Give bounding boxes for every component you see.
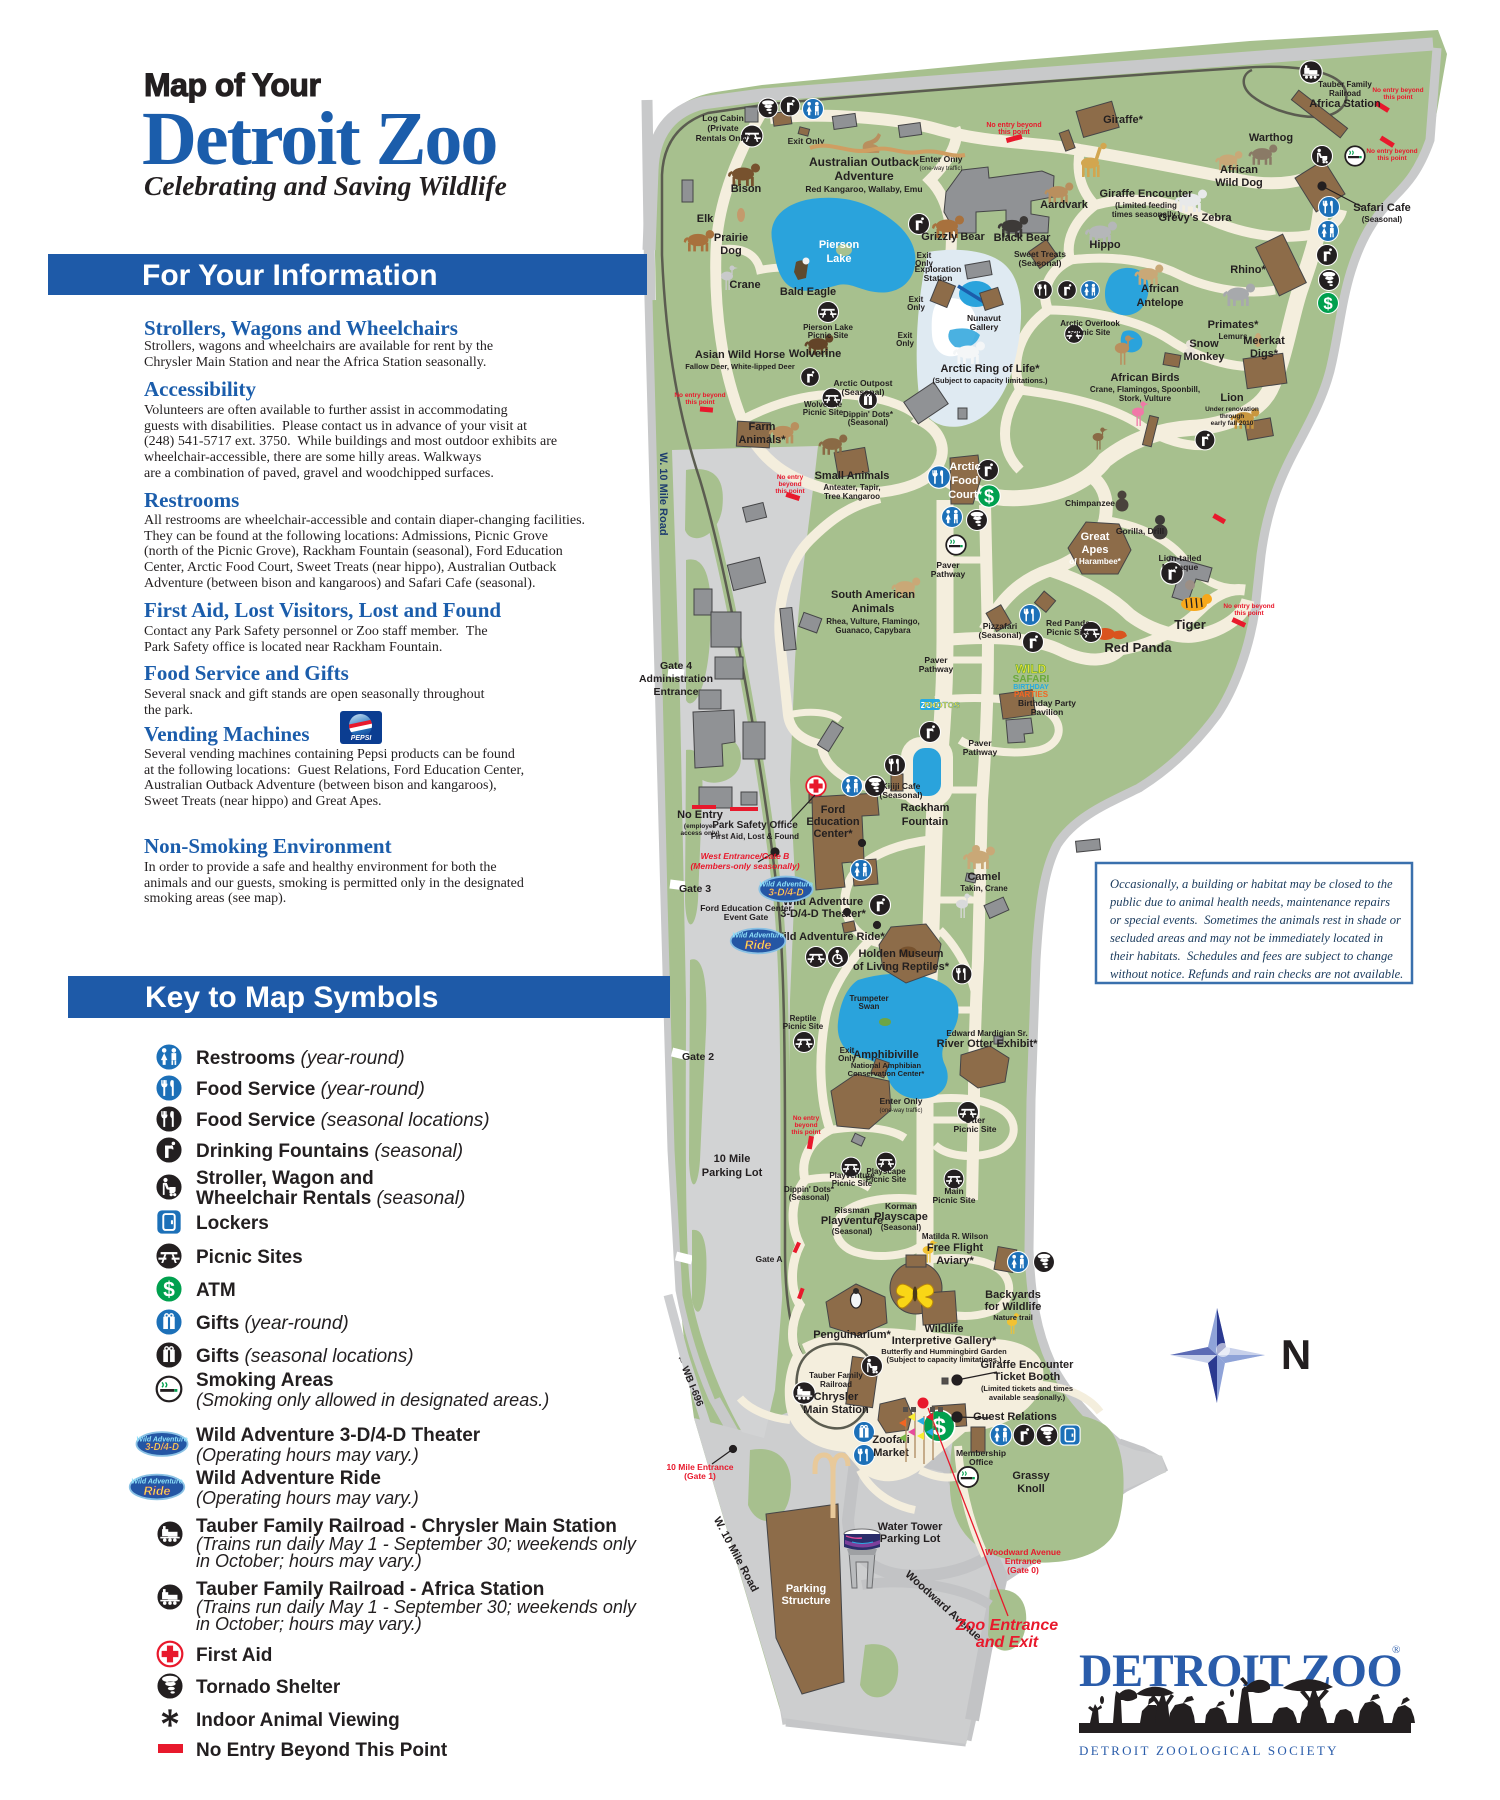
svg-text:Station: Station — [924, 273, 953, 283]
svg-text:Tauber Family: Tauber Family — [1318, 80, 1372, 89]
svg-text:this point: this point — [1383, 94, 1413, 101]
svg-text:Occasionally, a building or ha: Occasionally, a building or habitat may … — [1110, 877, 1393, 891]
svg-text:Pathway: Pathway — [963, 747, 998, 757]
svg-text:Food Service (seasonal locatio: Food Service (seasonal locations) — [196, 1110, 490, 1131]
svg-text:Fountain: Fountain — [902, 816, 949, 828]
svg-text:South American: South American — [831, 589, 915, 601]
svg-text:Water Tower: Water Tower — [878, 1521, 944, 1533]
svg-text:available seasonally.): available seasonally.) — [989, 1393, 1066, 1402]
svg-text:No entry beyond: No entry beyond — [1372, 87, 1423, 94]
svg-text:Only: Only — [907, 303, 925, 312]
svg-text:Picnic Site: Picnic Site — [803, 408, 844, 417]
svg-text:Knoll: Knoll — [1017, 1483, 1045, 1495]
svg-text:Entrance: Entrance — [654, 686, 699, 698]
svg-text:First Aid, Lost & Found: First Aid, Lost & Found — [711, 832, 799, 841]
svg-text:Center*: Center* — [813, 828, 853, 840]
svg-text:Conservation Center*: Conservation Center* — [848, 1069, 925, 1078]
svg-text:Animals: Animals — [852, 603, 895, 615]
svg-text:PHOTOS: PHOTOS — [924, 700, 960, 710]
svg-text:early fall 2010: early fall 2010 — [1211, 420, 1254, 427]
svg-text:Picnic Site: Picnic Site — [1047, 627, 1090, 637]
svg-text:Fallow Deer, White-lipped Deer: Fallow Deer, White-lipped Deer — [685, 362, 795, 371]
svg-text:(Seasonal): (Seasonal) — [1362, 215, 1403, 224]
svg-text:this point: this point — [1377, 155, 1407, 162]
svg-text:(Operating hours may vary.): (Operating hours may vary.) — [196, 1445, 419, 1465]
svg-text:African: African — [1220, 164, 1258, 176]
svg-text:(Seasonal): (Seasonal) — [881, 1223, 922, 1232]
svg-text:(Smoking only allowed in desig: (Smoking only allowed in designated area… — [196, 1390, 549, 1410]
svg-text:Picnic Site: Picnic Site — [783, 1022, 824, 1031]
svg-text:for Wildlife: for Wildlife — [985, 1301, 1042, 1313]
svg-text:Parking Lot: Parking Lot — [702, 1167, 763, 1179]
svg-text:(Subject to capacity limitatio: (Subject to capacity limitations.) — [932, 376, 1048, 385]
svg-text:Wildlife: Wildlife — [924, 1323, 963, 1335]
svg-text:Penguinarium*: Penguinarium* — [813, 1329, 891, 1341]
svg-text:Nature trail: Nature trail — [993, 1313, 1033, 1322]
svg-text:W. 10 Mile Road: W. 10 Mile Road — [657, 452, 669, 535]
svg-text:Safari Cafe: Safari Cafe — [1353, 202, 1410, 214]
svg-text:Gate 2: Gate 2 — [682, 1051, 714, 1063]
svg-text:Guest Relations: Guest Relations — [973, 1411, 1057, 1423]
svg-text:this point: this point — [998, 129, 1030, 136]
svg-text:Elk: Elk — [697, 213, 714, 225]
svg-text:Pathway: Pathway — [931, 569, 966, 579]
svg-text:Playscape: Playscape — [874, 1211, 928, 1223]
svg-text:their habitats. Schedules and: their habitats. Schedules and fees are s… — [1110, 949, 1393, 963]
svg-text:Giraffe*: Giraffe* — [1103, 114, 1143, 126]
svg-text:Tiger: Tiger — [1174, 617, 1206, 632]
svg-text:this point: this point — [685, 399, 715, 406]
svg-text:Crane, Flamingos, Spoonbill,: Crane, Flamingos, Spoonbill, — [1090, 385, 1200, 394]
svg-text:Food Service (year-round): Food Service (year-round) — [196, 1079, 425, 1100]
svg-text:(one-way traffic): (one-way traffic) — [880, 1108, 923, 1114]
svg-text:of Harambee*: of Harambee* — [1069, 557, 1121, 566]
svg-text:ATM: ATM — [196, 1280, 236, 1301]
svg-text:Event Gate: Event Gate — [724, 912, 769, 922]
svg-text:Grizzly Bear: Grizzly Bear — [921, 231, 985, 243]
svg-text:(Gate 0): (Gate 0) — [1007, 1565, 1039, 1575]
svg-text:Ticket Booth: Ticket Booth — [994, 1371, 1061, 1383]
svg-text:Education: Education — [806, 816, 859, 828]
svg-text:Wild Adventure Ride: Wild Adventure Ride — [196, 1468, 381, 1489]
svg-text:Court*: Court* — [948, 489, 982, 501]
svg-text:Indoor Animal Viewing: Indoor Animal Viewing — [196, 1710, 400, 1731]
svg-text:(Seasonal): (Seasonal) — [979, 630, 1022, 640]
svg-text:(Members-only seasonally): (Members-only seasonally) — [690, 861, 799, 871]
svg-text:(Private: (Private — [707, 123, 738, 133]
svg-text:Wolverine: Wolverine — [789, 348, 841, 360]
svg-text:Administration: Administration — [639, 673, 713, 685]
svg-text:Animals*: Animals* — [738, 434, 786, 446]
svg-text:in October; hours may vary.): in October; hours may vary.) — [196, 1551, 422, 1571]
svg-text:Wild Adventure 3-D/4-D Theater: Wild Adventure 3-D/4-D Theater — [196, 1425, 481, 1446]
svg-text:Wild Adventure Ride*: Wild Adventure Ride* — [773, 931, 885, 943]
svg-text:Chrysler: Chrysler — [814, 1391, 859, 1403]
svg-text:Drinking Fountains (seasonal): Drinking Fountains (seasonal) — [196, 1141, 463, 1162]
svg-text:or special events. Sometimes: or special events. Sometimes the animals… — [1110, 913, 1401, 927]
svg-text:Chimpanzee: Chimpanzee — [1065, 498, 1115, 508]
svg-text:Dog: Dog — [720, 245, 741, 257]
svg-text:Interpretive Gallery*: Interpretive Gallery* — [892, 1335, 997, 1347]
svg-text:Gate A: Gate A — [755, 1254, 782, 1264]
svg-text:Monkey: Monkey — [1184, 351, 1226, 363]
svg-text:Parking Lot: Parking Lot — [880, 1533, 941, 1545]
svg-text:®: ® — [1392, 1644, 1400, 1656]
svg-text:Smoking Areas: Smoking Areas — [196, 1370, 334, 1391]
svg-text:Bald Eagle: Bald Eagle — [780, 286, 836, 298]
svg-text:Picnic Site: Picnic Site — [933, 1195, 976, 1205]
svg-text:Swan: Swan — [859, 1002, 880, 1011]
svg-text:Camel: Camel — [967, 871, 1000, 883]
svg-text:times seasonally.): times seasonally.) — [1112, 210, 1181, 219]
svg-text:Pavilion: Pavilion — [1031, 707, 1064, 717]
svg-text:Digs*: Digs* — [1250, 348, 1279, 360]
svg-text:Rentals Only): Rentals Only) — [696, 133, 751, 143]
svg-text:Hippo: Hippo — [1089, 239, 1120, 251]
svg-text:Backyards: Backyards — [985, 1289, 1041, 1301]
svg-text:Holden Museum: Holden Museum — [859, 948, 944, 960]
svg-text:Main Station: Main Station — [803, 1404, 869, 1416]
svg-text:Ford: Ford — [821, 804, 845, 816]
svg-text:Warthog: Warthog — [1249, 132, 1293, 144]
svg-text:Bison: Bison — [731, 183, 762, 195]
svg-text:Aviary*: Aviary* — [936, 1255, 974, 1267]
svg-text:Giraffe Encounter: Giraffe Encounter — [981, 1359, 1075, 1371]
svg-text:Small Animals: Small Animals — [815, 470, 890, 482]
svg-text:Aardvark: Aardvark — [1040, 199, 1089, 211]
svg-text:Picnic Site: Picnic Site — [866, 1175, 907, 1184]
svg-text:Lockers: Lockers — [196, 1213, 269, 1234]
svg-text:Giraffe Encounter: Giraffe Encounter — [1100, 188, 1194, 200]
svg-text:Rhea, Vulture, Flamingo,: Rhea, Vulture, Flamingo, — [826, 617, 920, 626]
svg-text:DETROIT ZOOLOGICAL SOCIETY: DETROIT ZOOLOGICAL SOCIETY — [1079, 1743, 1339, 1758]
svg-text:Korman: Korman — [885, 1201, 917, 1211]
svg-text:No entry beyond: No entry beyond — [1366, 148, 1417, 155]
svg-text:Tauber Family: Tauber Family — [809, 1371, 863, 1380]
svg-text:Guanaco, Capybara: Guanaco, Capybara — [835, 626, 911, 635]
svg-text:Office: Office — [969, 1457, 993, 1467]
svg-text:Gallery: Gallery — [970, 322, 999, 332]
svg-text:(Seasonal): (Seasonal) — [880, 790, 923, 800]
svg-text:Africa Station: Africa Station — [1309, 98, 1381, 110]
svg-text:Wheelchair Rentals (seasonal): Wheelchair Rentals (seasonal) — [196, 1188, 465, 1209]
svg-text:Tornado Shelter: Tornado Shelter — [196, 1677, 341, 1698]
svg-text:Antelope: Antelope — [1136, 297, 1183, 309]
svg-text:Arctic Overlook: Arctic Overlook — [1060, 319, 1120, 328]
svg-text:(Limited tickets and times: (Limited tickets and times — [981, 1384, 1073, 1393]
svg-text:(Seasonal): (Seasonal) — [832, 1227, 873, 1236]
svg-text:Meerkat: Meerkat — [1243, 335, 1285, 347]
svg-text:PARTIES: PARTIES — [1014, 690, 1049, 699]
svg-text:Market: Market — [873, 1447, 909, 1459]
svg-text:Asian Wild Horse: Asian Wild Horse — [695, 349, 785, 361]
svg-text:Rackham: Rackham — [901, 802, 950, 814]
svg-text:this point: this point — [1234, 610, 1264, 617]
svg-text:Matilda R. Wilson: Matilda R. Wilson — [922, 1232, 988, 1241]
svg-text:(Gate 1): (Gate 1) — [684, 1471, 716, 1481]
svg-text:Amphibiville: Amphibiville — [853, 1049, 918, 1061]
svg-text:Red Kangaroo, Wallaby, Emu: Red Kangaroo, Wallaby, Emu — [805, 184, 922, 194]
svg-text:Australian Outback: Australian Outback — [809, 155, 919, 169]
svg-text:Primates*: Primates* — [1208, 319, 1259, 331]
svg-text:Stork, Vulture: Stork, Vulture — [1119, 394, 1172, 403]
svg-text:Enter Only: Enter Only — [880, 1096, 923, 1106]
svg-text:(Limited feeding: (Limited feeding — [1115, 201, 1177, 210]
svg-text:and Exit: and Exit — [976, 1634, 1039, 1651]
svg-text:Gate 4: Gate 4 — [660, 660, 692, 672]
svg-text:Farm: Farm — [749, 421, 776, 433]
svg-text:Pathway: Pathway — [919, 664, 954, 674]
svg-text:Picnic Site: Picnic Site — [808, 331, 849, 340]
svg-text:Gifts (year-round): Gifts (year-round) — [196, 1313, 349, 1334]
svg-text:Stroller, Wagon and: Stroller, Wagon and — [196, 1168, 374, 1189]
svg-text:Takin, Crane: Takin, Crane — [960, 884, 1008, 893]
svg-text:beyond: beyond — [778, 481, 801, 488]
svg-text:this point: this point — [791, 1129, 821, 1136]
svg-text:Picnic Site: Picnic Site — [1070, 328, 1111, 337]
svg-text:Arctic Ring of Life*: Arctic Ring of Life* — [940, 363, 1040, 375]
svg-text:3-D/4-D Theater*: 3-D/4-D Theater* — [780, 908, 866, 920]
svg-text:Under renovation: Under renovation — [1205, 406, 1259, 413]
svg-text:No entry beyond: No entry beyond — [1223, 603, 1274, 610]
svg-text:Parking: Parking — [786, 1583, 826, 1595]
svg-text:(Seasonal): (Seasonal) — [1019, 258, 1062, 268]
svg-text:Red Panda: Red Panda — [1104, 640, 1172, 655]
svg-text:(one-way traffic): (one-way traffic) — [920, 166, 963, 172]
svg-text:Gate 3: Gate 3 — [679, 883, 711, 895]
svg-text:No entry: No entry — [793, 1115, 820, 1122]
svg-text:in October; hours may vary.): in October; hours may vary.) — [196, 1614, 422, 1634]
svg-text:Adventure: Adventure — [834, 169, 894, 183]
svg-text:N: N — [1281, 1331, 1311, 1378]
svg-text:West Entrance/Gate B: West Entrance/Gate B — [701, 851, 790, 861]
svg-text:No Entry Beyond This Point: No Entry Beyond This Point — [196, 1740, 448, 1761]
svg-text:without notice. Refunds and ra: without notice. Refunds and rain checks … — [1110, 967, 1403, 981]
svg-text:(Operating hours may vary.): (Operating hours may vary.) — [196, 1488, 419, 1508]
svg-text:Lake: Lake — [826, 253, 851, 265]
svg-text:Picnic Site: Picnic Site — [954, 1124, 997, 1134]
svg-text:Restrooms (year-round): Restrooms (year-round) — [196, 1048, 405, 1069]
svg-text:Arctic: Arctic — [949, 461, 980, 473]
svg-text:Tree Kangaroo: Tree Kangaroo — [824, 492, 880, 501]
svg-text:Gorilla, Drill: Gorilla, Drill — [1116, 526, 1164, 536]
svg-text:Wild Dog: Wild Dog — [1215, 177, 1263, 189]
svg-text:African: African — [1141, 283, 1179, 295]
svg-text:Free Flight: Free Flight — [927, 1242, 984, 1254]
svg-text:of Living Reptiles*: of Living Reptiles* — [853, 961, 950, 973]
svg-text:River Otter Exhibit*: River Otter Exhibit* — [937, 1038, 1039, 1050]
svg-text:secluded areas and may not be: secluded areas and may not be immediatel… — [1110, 931, 1383, 945]
svg-text:Crane: Crane — [729, 279, 760, 291]
svg-text:(Seasonal): (Seasonal) — [842, 387, 885, 397]
svg-text:beyond: beyond — [794, 1122, 817, 1129]
svg-text:Zoo Entrance: Zoo Entrance — [955, 1617, 1058, 1634]
svg-text:Lion: Lion — [1220, 392, 1243, 404]
svg-text:Food: Food — [952, 475, 979, 487]
svg-text:First Aid: First Aid — [196, 1645, 272, 1666]
svg-text:(Seasonal): (Seasonal) — [789, 1193, 830, 1202]
svg-text:Apes: Apes — [1082, 544, 1109, 556]
svg-text:African Birds: African Birds — [1110, 372, 1179, 384]
svg-text:Rissman: Rissman — [834, 1205, 869, 1215]
svg-text:Pierson: Pierson — [819, 239, 860, 251]
svg-text:this point: this point — [775, 488, 805, 495]
svg-text:Great: Great — [1081, 531, 1110, 543]
svg-text:Prairie: Prairie — [714, 232, 748, 244]
svg-text:Rhino*: Rhino* — [1230, 264, 1266, 276]
svg-text:Macaque: Macaque — [1162, 562, 1199, 572]
svg-text:Only: Only — [896, 339, 914, 348]
svg-text:Snow: Snow — [1189, 338, 1219, 350]
svg-text:Structure: Structure — [782, 1595, 831, 1607]
svg-text:(Seasonal): (Seasonal) — [848, 418, 889, 427]
svg-text:No entry beyond: No entry beyond — [986, 122, 1041, 129]
svg-text:Anteater, Tapir,: Anteater, Tapir, — [823, 483, 880, 492]
svg-text:Grassy: Grassy — [1012, 1470, 1050, 1482]
svg-text:No entry: No entry — [777, 474, 804, 481]
svg-text:Railroad: Railroad — [1329, 89, 1361, 98]
svg-text:Railroad: Railroad — [820, 1380, 852, 1389]
svg-text:10 Mile: 10 Mile — [714, 1153, 751, 1165]
svg-text:through: through — [1220, 413, 1245, 420]
svg-text:Park Safety Office: Park Safety Office — [712, 820, 798, 831]
svg-text:Black Bear: Black Bear — [994, 232, 1052, 244]
svg-text:public due to animal health ne: public due to animal health needs, maint… — [1109, 895, 1390, 909]
svg-text:Gifts (seasonal locations): Gifts (seasonal locations) — [196, 1346, 414, 1367]
svg-text:Edward Mardigian Sr.: Edward Mardigian Sr. — [946, 1029, 1027, 1038]
svg-text:Log Cabin: Log Cabin — [702, 113, 744, 123]
svg-text:No entry beyond: No entry beyond — [674, 392, 725, 399]
svg-text:Picnic Sites: Picnic Sites — [196, 1247, 303, 1268]
